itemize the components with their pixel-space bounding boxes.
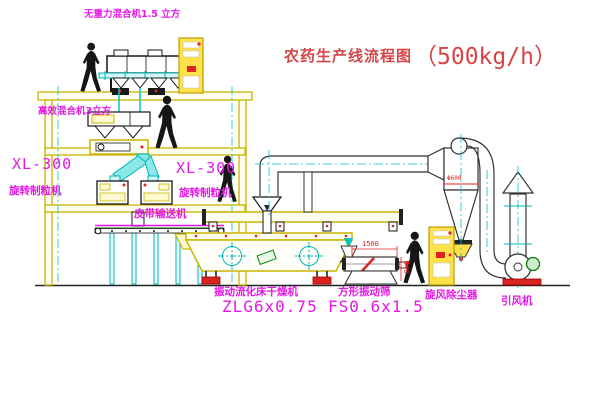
label-dryer-model: ZLG6x0.75 <box>222 299 318 315</box>
label-gravity-mixer: 无重力混合机1.5 立方 <box>84 10 180 20</box>
granulator-right <box>141 176 172 204</box>
label-belt-conveyor: 皮带输送机 <box>134 209 187 220</box>
label-fan: 引风机 <box>501 296 533 307</box>
label-high-mixer: 高效混合机3立方 <box>38 107 111 117</box>
page-title: 农药生产线流程图 （500kg/h） <box>284 46 557 69</box>
label-dryer-name: 振动流化床干燥机 <box>214 287 298 298</box>
control-cabinet-bottom <box>429 227 454 285</box>
label-granulator-right-name: 旋转制粒机 <box>179 188 232 199</box>
dim-screen-height: 540 <box>402 261 409 274</box>
high-efficiency-mixer <box>88 112 150 154</box>
induced-draft-fan <box>503 254 541 285</box>
dim-screen-length: 1500 <box>362 241 379 248</box>
label-granulator-right-model: XL-300 <box>176 161 236 176</box>
title-capacity: （500kg/h） <box>414 46 557 69</box>
control-cabinet-top <box>179 38 203 93</box>
fan-inlet-duct <box>480 170 506 278</box>
indicator-light <box>197 42 200 45</box>
dim-cyclone-dia: Φ600 <box>447 176 461 182</box>
worker-figure <box>80 43 100 92</box>
cad-flow-diagram: 农药生产线流程图 （500kg/h） 无重力混合机1.5 立方 高效混合机3立方… <box>0 0 600 403</box>
worker-figure <box>156 96 178 149</box>
label-cyclone: 旋风除尘器 <box>425 290 478 301</box>
label-screen-model: FS0.6x1.5 <box>328 299 424 315</box>
label-granulator-left-model: XL-300 <box>12 157 72 172</box>
label-screen-name: 方形振动筛 <box>338 287 391 298</box>
title-text: 农药生产线流程图 <box>284 49 412 69</box>
indicator-light <box>448 231 451 234</box>
label-granulator-left-name: 旋转制粒机 <box>9 186 62 197</box>
granulator-left <box>97 176 128 204</box>
worker-figure <box>403 232 425 284</box>
